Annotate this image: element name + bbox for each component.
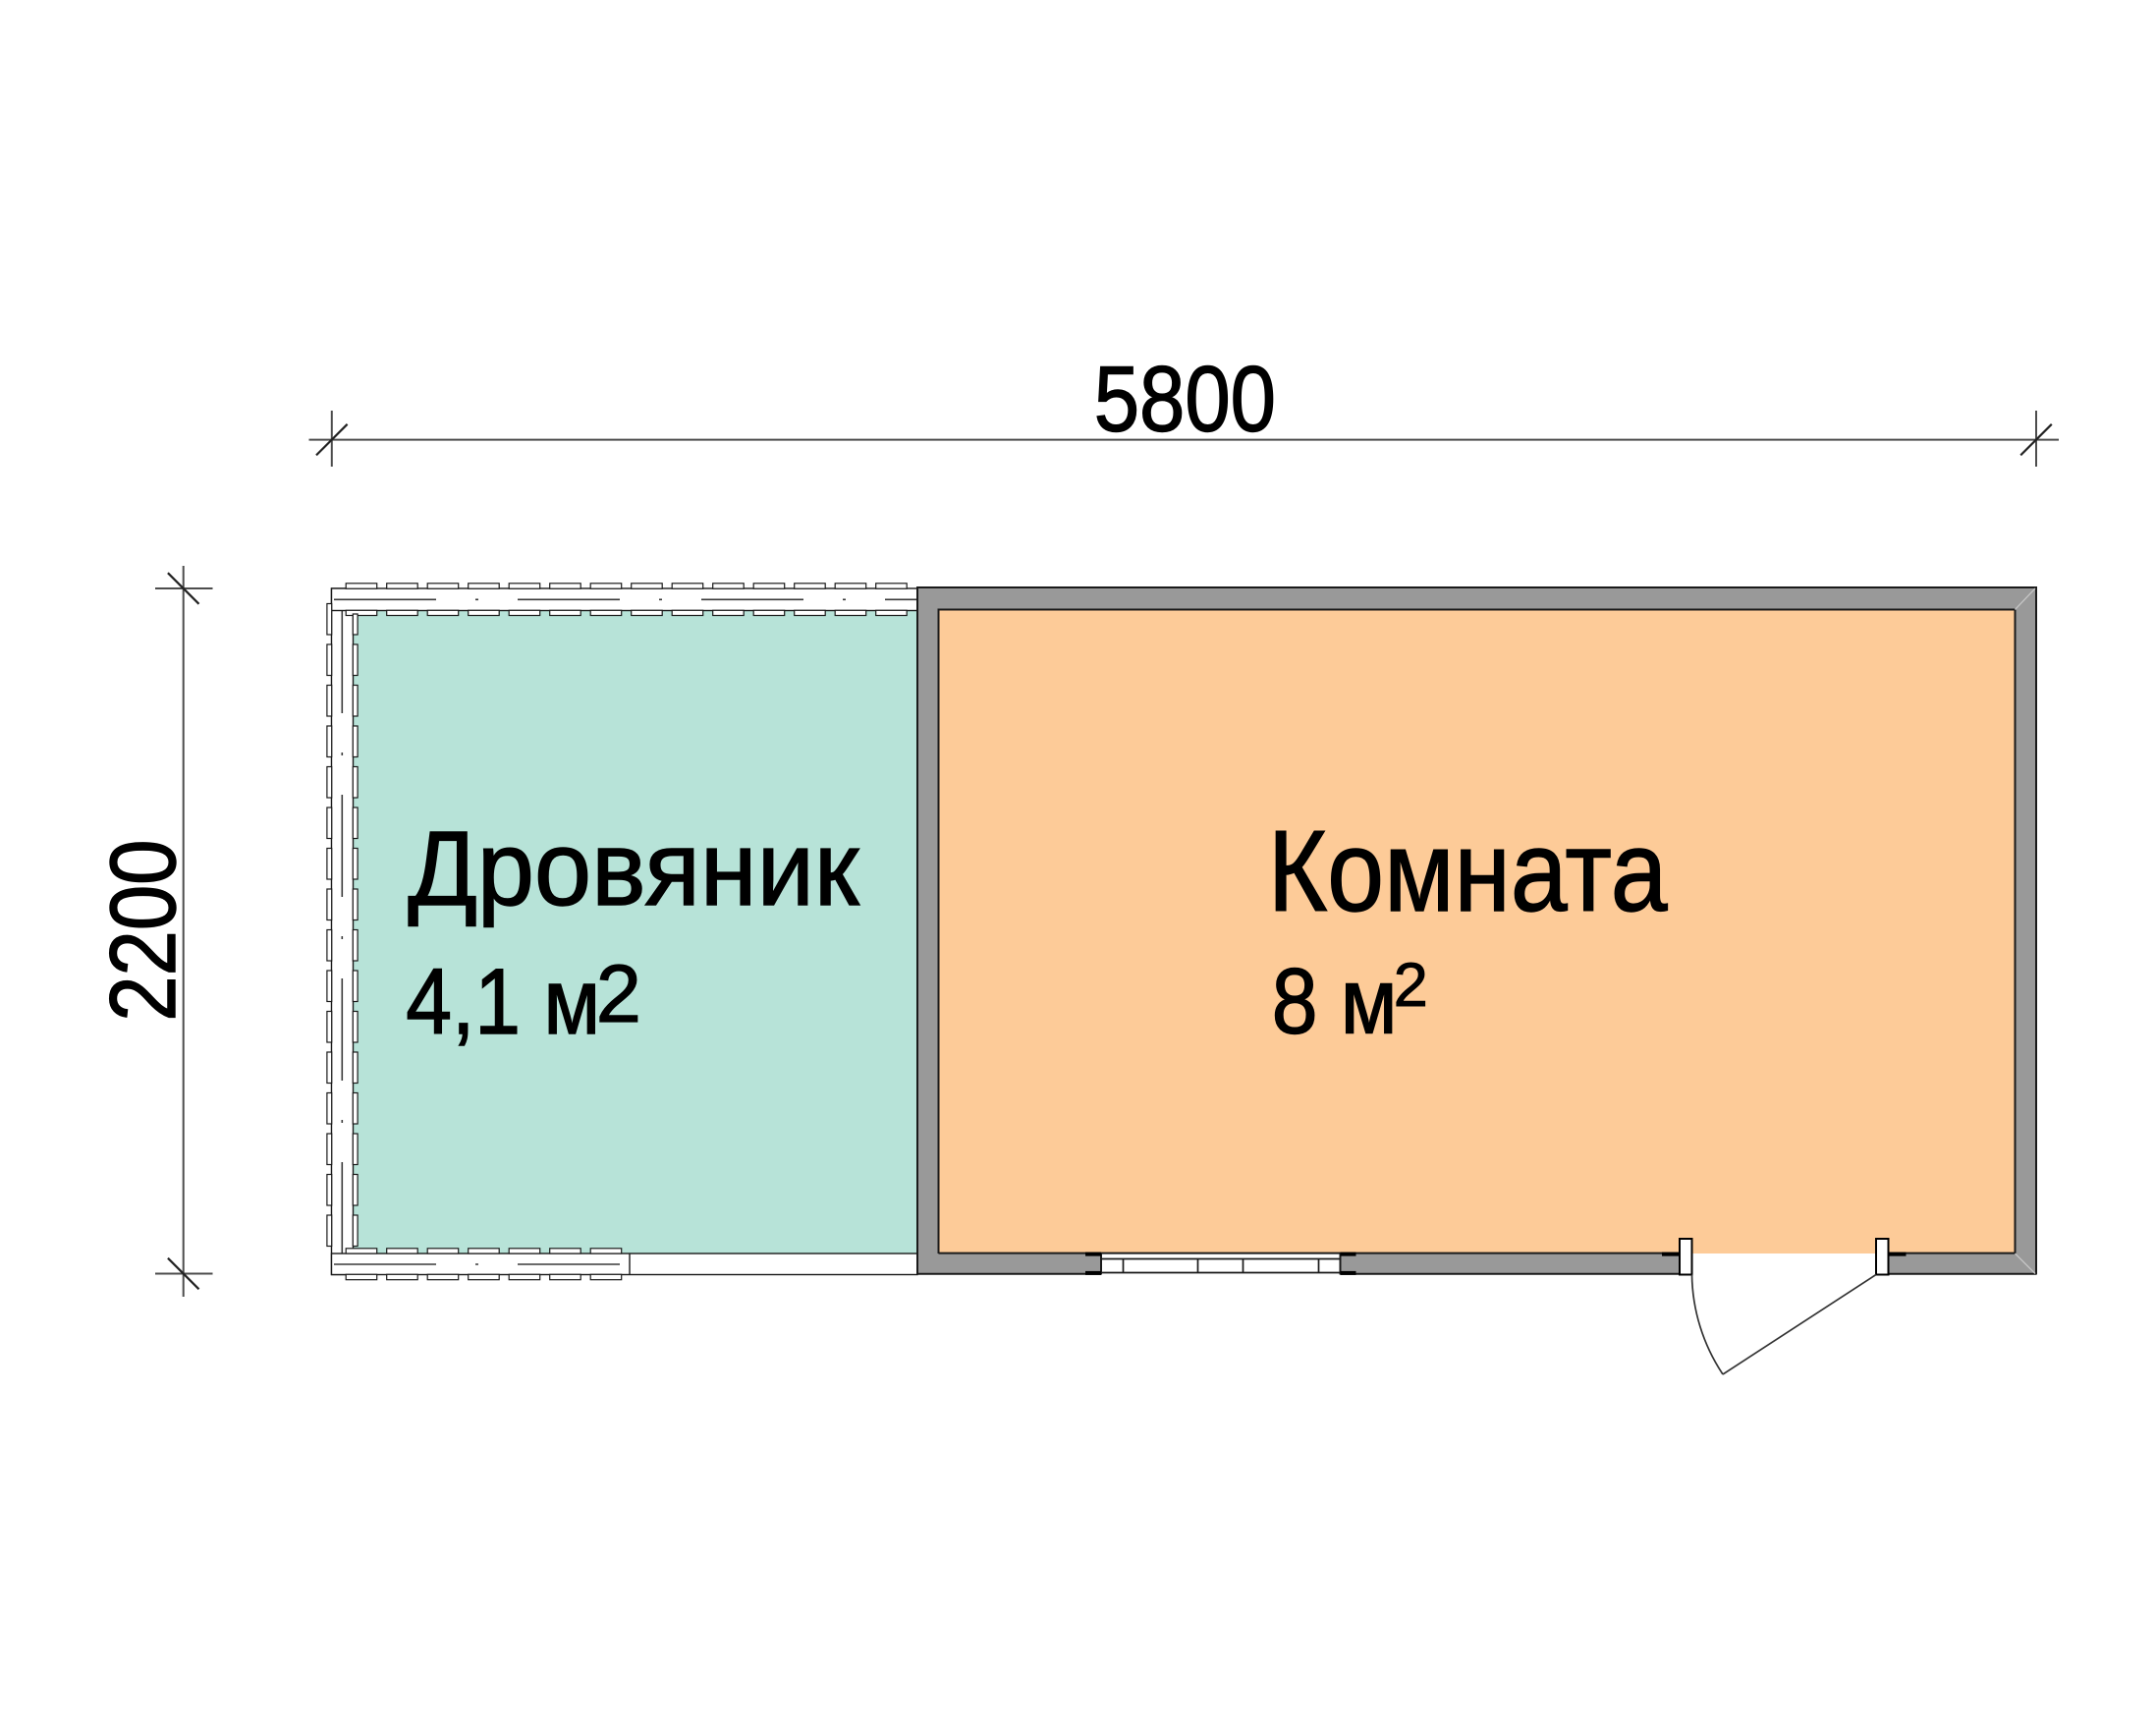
svg-text:Комната: Комната — [1268, 808, 1668, 936]
svg-text:4,1 м: 4,1 м — [406, 950, 600, 1054]
svg-text:2: 2 — [1394, 951, 1428, 1020]
svg-text:2: 2 — [596, 948, 641, 1039]
svg-text:8 м: 8 м — [1272, 950, 1398, 1054]
svg-text:5800: 5800 — [1094, 346, 1276, 450]
svg-text:Дровяник: Дровяник — [408, 809, 859, 928]
svg-text:2200: 2200 — [90, 839, 194, 1021]
